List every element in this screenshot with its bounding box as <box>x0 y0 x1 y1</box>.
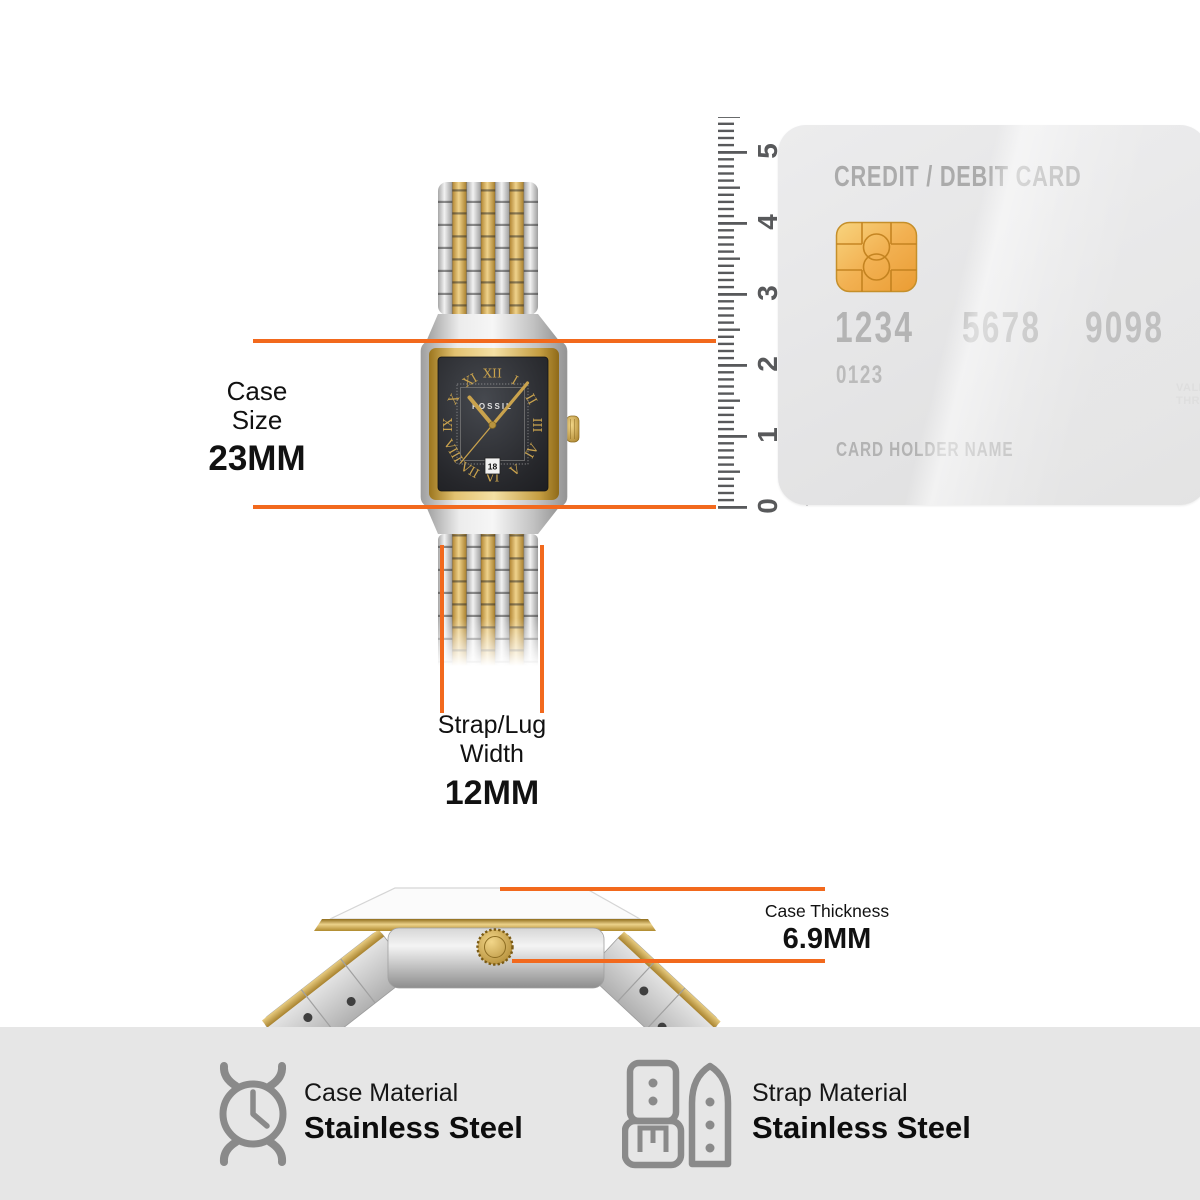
crown-side <box>478 930 513 965</box>
card-number-group-1: 1234 <box>835 306 914 350</box>
strap-width-label: Strap/Lug Width 12MM <box>400 711 584 814</box>
strap-width-value: 12MM <box>400 772 584 814</box>
case-material-value: Stainless Steel <box>304 1109 523 1146</box>
case-thickness-value: 6.9MM <box>737 922 917 956</box>
card-valid-thru: VALID THRU <box>1176 382 1200 408</box>
hands-cap <box>489 422 496 429</box>
case-thickness-label-text: Case Thickness <box>737 901 917 922</box>
card-number-group-2: 5678 <box>962 306 1041 350</box>
watch-case-icon <box>211 1060 295 1166</box>
bracelet-top <box>438 182 538 315</box>
crown <box>567 416 580 442</box>
case-material-text: Case Material Stainless Steel <box>304 1078 523 1146</box>
bracelet-side-right <box>586 932 721 1034</box>
footer-band <box>0 1027 1200 1200</box>
card-account-number: 0123 <box>836 361 884 390</box>
case-size-label-line2: Size <box>190 406 324 435</box>
case-size-label-line1: Case <box>190 377 324 406</box>
case-size-value: 23MM <box>190 438 324 480</box>
case-size-line-top <box>253 339 716 343</box>
strap-width-line-left <box>440 545 444 713</box>
strap-width-line-right <box>540 545 544 713</box>
card-valid-line2: THRU <box>1176 395 1200 408</box>
bottom-lugs <box>426 506 560 534</box>
svg-text:XII: XII <box>483 366 502 381</box>
top-lugs <box>426 314 560 342</box>
case-material-label: Case Material <box>304 1078 523 1109</box>
strap-material-text: Strap Material Stainless Steel <box>752 1078 971 1146</box>
thickness-line-top <box>500 887 825 891</box>
card-valid-line1: VALID <box>1176 382 1200 395</box>
date-value: 18 <box>488 462 498 472</box>
strap-width-label-line2: Width <box>400 740 584 769</box>
card-number-group-3: 9098 <box>1085 306 1164 350</box>
clock-hands-icon <box>253 1092 267 1126</box>
card-title: CREDIT / DEBIT CARD <box>834 161 1081 194</box>
infographic-canvas: XII I II III IV V VI VII VIII IX X XI FO… <box>0 0 1200 1200</box>
strap-material-value: Stainless Steel <box>752 1109 971 1146</box>
strap-width-label-line1: Strap/Lug <box>400 711 584 740</box>
thickness-line-bottom <box>512 959 825 963</box>
glass-side <box>330 888 640 919</box>
ruler-number-0: 0 <box>753 489 783 523</box>
card-holder-label: CARD HOLDER NAME <box>836 438 1014 462</box>
case-size-label: Case Size 23MM <box>190 377 324 480</box>
case-size-line-bottom <box>253 505 716 509</box>
ruler <box>714 117 754 509</box>
ruler-ticks <box>714 117 754 509</box>
case-thickness-label: Case Thickness 6.9MM <box>737 901 917 956</box>
card-chip-icon <box>835 221 918 293</box>
watch-front-view: XII I II III IV V VI VII VIII IX X XI FO… <box>400 180 600 680</box>
strap-material-label: Strap Material <box>752 1078 971 1109</box>
bracelet-bottom <box>438 534 538 670</box>
svg-text:III: III <box>530 418 545 433</box>
credit-card: CREDIT / DEBIT CARD 1234 5678 9098 0123 … <box>778 125 1200 505</box>
svg-text:IX: IX <box>440 418 455 432</box>
strap-icon <box>622 1058 740 1170</box>
